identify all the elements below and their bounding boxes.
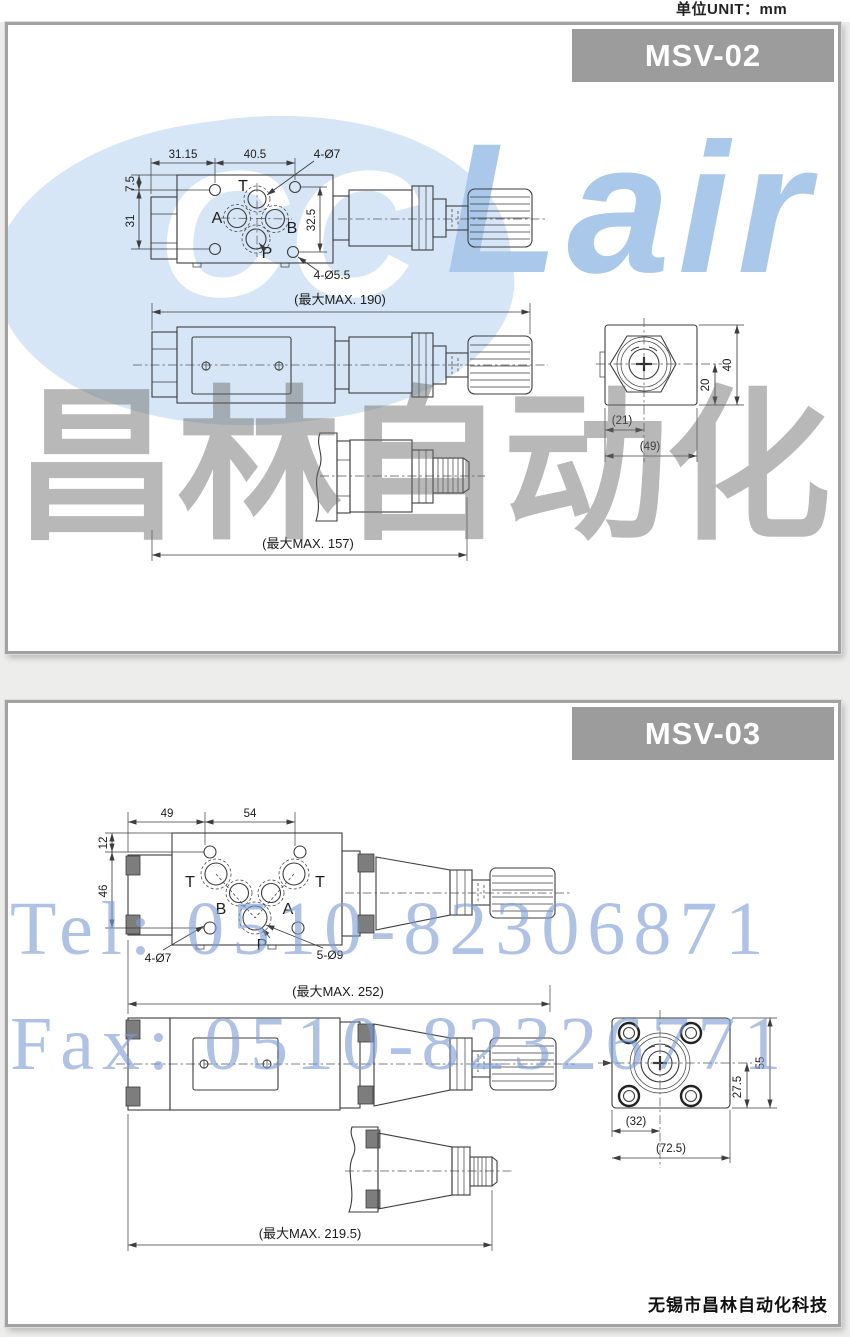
watermark-logo-air: Lair (446, 117, 817, 302)
watermark-fax: Fax: 0510-82326771 (10, 1006, 789, 1082)
watermark-logo-cc: CC (158, 145, 418, 325)
watermark-tel: Tel: 0510-82306871 (10, 891, 771, 967)
panel-title-msv02: MSV-02 (572, 29, 834, 82)
watermark-logo-blob (5, 83, 530, 462)
unit-label: 单位UNIT：mm (676, 0, 787, 19)
watermark-brand-text: 昌林自动化 (14, 385, 829, 550)
company-name: 无锡市昌林自动化科技 (648, 1291, 828, 1316)
panel-title-msv03: MSV-03 (572, 707, 834, 760)
panel-msv02: MSV-02 CC Lair 昌林自动化 (5, 22, 841, 654)
panel-msv03: MSV-03 Tel: 0510-82306871 Fax: 0510-8232… (5, 700, 841, 1327)
